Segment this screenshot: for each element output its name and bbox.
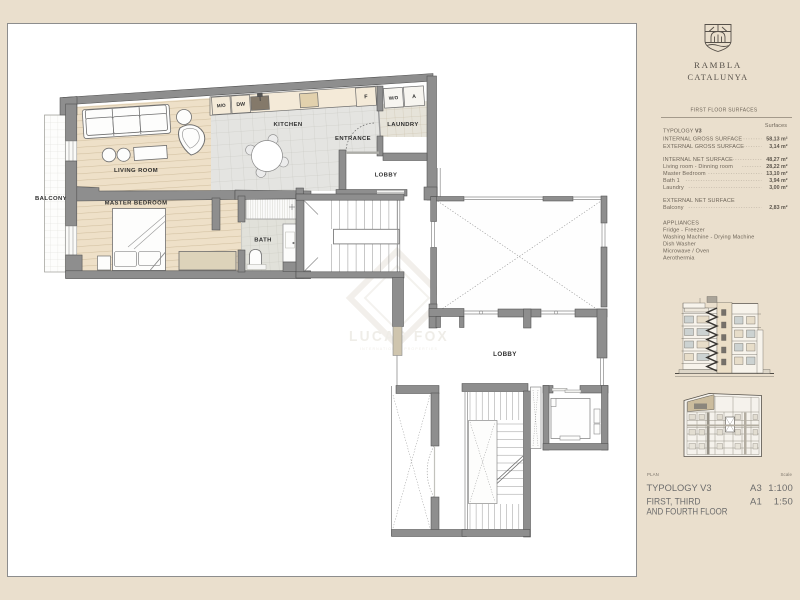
svg-text:Laundry: Laundry (663, 185, 684, 191)
svg-text:TYPOLOGY V3: TYPOLOGY V3 (647, 483, 712, 494)
svg-text:13,10 m²: 13,10 m² (766, 171, 787, 177)
svg-text:LAUNDRY: LAUNDRY (387, 122, 418, 128)
svg-text:A1: A1 (750, 497, 762, 508)
svg-text:RAMBLA: RAMBLA (694, 60, 742, 70)
svg-text:Master Bedroom: Master Bedroom (663, 171, 706, 177)
svg-text:DW: DW (236, 102, 245, 109)
svg-text:KITCHEN: KITCHEN (274, 122, 303, 128)
svg-text:LOBBY: LOBBY (375, 173, 398, 179)
svg-text:1:100: 1:100 (768, 483, 793, 494)
svg-text:W/O: W/O (389, 95, 399, 101)
svg-text:FIRST FLOOR SURFACES: FIRST FLOOR SURFACES (691, 108, 758, 114)
svg-text:28,22 m²: 28,22 m² (766, 164, 787, 170)
svg-text:INTERNAL GROSS SURFACE: INTERNAL GROSS SURFACE (663, 137, 742, 143)
svg-text:1:50: 1:50 (774, 497, 793, 508)
svg-text:BATH: BATH (254, 238, 272, 244)
svg-text:Living room - Dinning room: Living room - Dinning room (663, 164, 733, 170)
svg-text:Balcony: Balcony (663, 205, 684, 211)
svg-text:MASTER BEDROOM: MASTER BEDROOM (105, 201, 168, 207)
svg-text:2,83 m²: 2,83 m² (769, 205, 787, 211)
svg-text:PLAN: PLAN (647, 472, 659, 477)
svg-text:LOBBY: LOBBY (493, 351, 517, 358)
svg-text:3,94 m²: 3,94 m² (769, 178, 787, 184)
svg-text:LIVING ROOM: LIVING ROOM (114, 168, 158, 174)
svg-text:Surfaces: Surfaces (765, 123, 787, 129)
svg-text:A3: A3 (750, 483, 762, 494)
svg-text:M/O: M/O (217, 103, 227, 109)
svg-text:AND FOURTH FLOOR: AND FOURTH FLOOR (647, 507, 728, 518)
svg-text:3,14 m²: 3,14 m² (769, 144, 787, 150)
svg-text:Aerothermia: Aerothermia (663, 256, 695, 262)
svg-text:EXTERNAL NET SURFACE: EXTERNAL NET SURFACE (663, 198, 735, 204)
svg-text:EXTERNAL GROSS SURFACE: EXTERNAL GROSS SURFACE (663, 144, 744, 150)
svg-text:Dish Washer: Dish Washer (663, 242, 696, 248)
svg-text:APPLIANCES: APPLIANCES (663, 221, 699, 227)
svg-text:48,27 m²: 48,27 m² (766, 157, 787, 163)
svg-text:A: A (412, 94, 416, 100)
svg-text:Bath 1: Bath 1 (663, 178, 680, 184)
svg-text:3,00 m²: 3,00 m² (769, 185, 787, 191)
svg-text:CATALUNYA: CATALUNYA (688, 72, 749, 82)
svg-text:BALCONY: BALCONY (35, 196, 67, 202)
svg-text:INTERNAL NET SURFACE: INTERNAL NET SURFACE (663, 157, 733, 163)
svg-text:58,13 m²: 58,13 m² (766, 137, 787, 143)
svg-text:Scale: Scale (781, 472, 793, 477)
svg-text:Washing Machine - Drying Machi: Washing Machine - Drying Machine (663, 235, 754, 241)
svg-text:Microwave / Oven: Microwave / Oven (663, 249, 709, 255)
svg-text:TYPOLOGY V3: TYPOLOGY V3 (663, 129, 702, 135)
svg-text:ENTRANCE: ENTRANCE (335, 136, 371, 142)
svg-text:Fridge - Freezer: Fridge - Freezer (663, 228, 705, 234)
